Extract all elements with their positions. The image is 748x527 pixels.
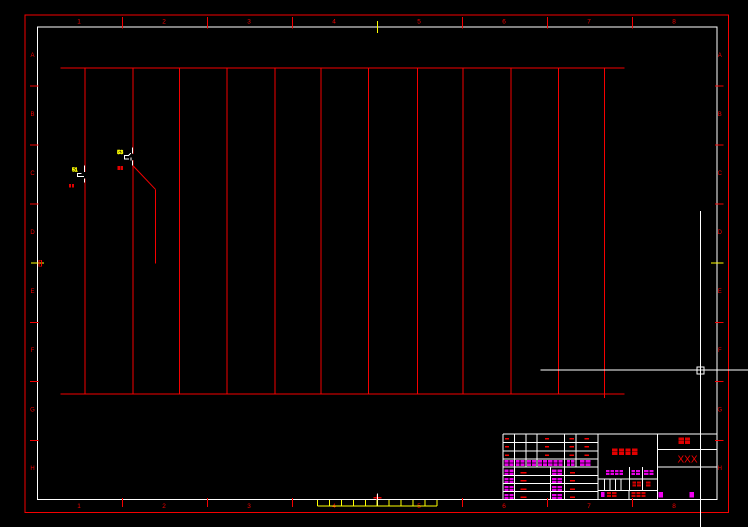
svg-text:A: A: [30, 53, 34, 59]
svg-text:2: 2: [162, 19, 166, 26]
svg-text:D: D: [718, 230, 723, 236]
svg-text:3: 3: [247, 503, 251, 510]
svg-text:C: C: [30, 171, 35, 177]
svg-text:B: B: [718, 112, 722, 118]
svg-text:1: 1: [77, 503, 81, 510]
svg-text:F: F: [718, 348, 722, 354]
svg-text:53: 53: [117, 150, 123, 156]
svg-text:A: A: [718, 53, 722, 59]
svg-text:G: G: [717, 408, 722, 414]
svg-text:D: D: [30, 230, 35, 236]
svg-text:C: C: [718, 171, 723, 177]
svg-text:G: G: [30, 408, 35, 414]
svg-text:4: 4: [332, 19, 336, 26]
svg-text:6: 6: [502, 503, 506, 510]
svg-text:7: 7: [587, 503, 591, 510]
svg-text:8: 8: [672, 503, 676, 510]
svg-text:2: 2: [162, 503, 166, 510]
svg-text:XXX: XXX: [677, 454, 697, 465]
svg-text:6: 6: [502, 19, 506, 26]
svg-text:E: E: [30, 289, 34, 295]
svg-text:4: 4: [332, 503, 336, 510]
svg-text:H: H: [30, 466, 34, 472]
svg-text:5: 5: [417, 503, 421, 510]
svg-text:F: F: [31, 348, 35, 354]
svg-text:5: 5: [417, 19, 421, 26]
svg-text:B: B: [30, 112, 34, 118]
svg-text:1: 1: [77, 19, 81, 26]
svg-text:3: 3: [247, 19, 251, 26]
svg-text:E: E: [718, 289, 722, 295]
svg-text:8: 8: [672, 19, 676, 26]
svg-text:51: 51: [72, 168, 78, 174]
svg-text:7: 7: [587, 19, 591, 26]
svg-text:H: H: [718, 466, 722, 472]
